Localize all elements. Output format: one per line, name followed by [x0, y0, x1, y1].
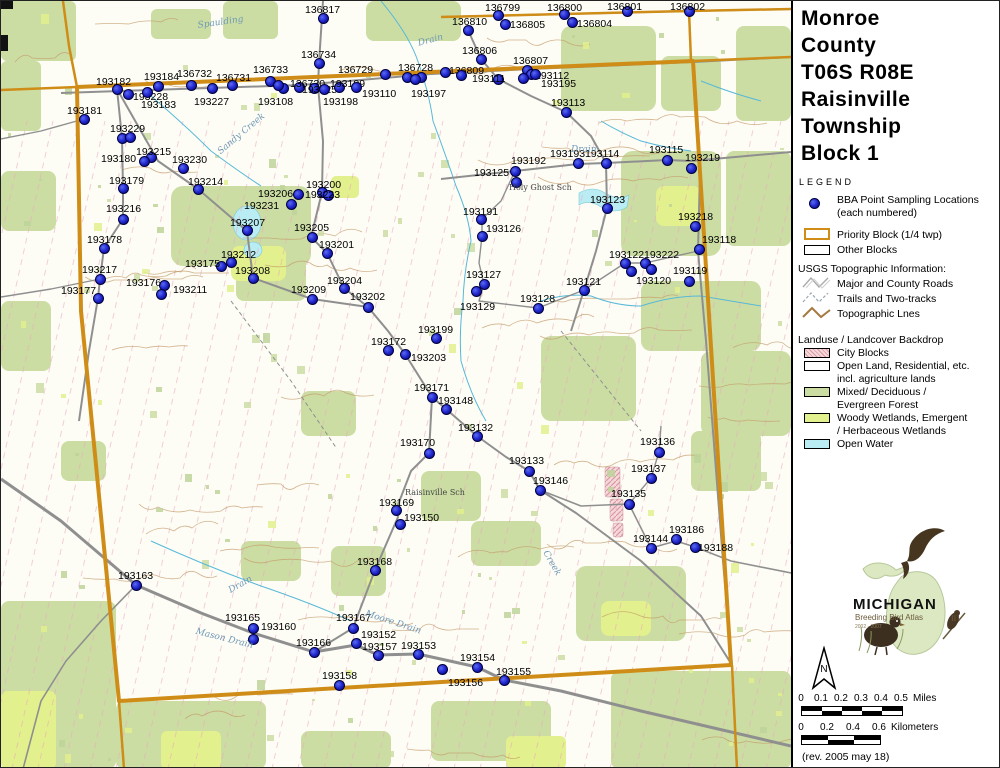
map-place-label: Drain: [417, 32, 444, 48]
bba-point-label: 193216: [106, 203, 141, 215]
scale-tick-label: 0.2: [820, 722, 834, 733]
bba-point-label: 193195: [541, 78, 576, 90]
major-roads-icon: [801, 275, 833, 290]
bba-point-label: 193153: [401, 640, 436, 652]
bba-point-label: 193180: [101, 153, 136, 165]
legend-major-roads-label: Major and County Roads: [837, 278, 953, 290]
map-place-label: Creek: [540, 549, 562, 578]
bba-point-label: 193184: [144, 71, 179, 83]
bba-point-label: 136806: [462, 45, 497, 57]
km-unit-label: Kilometers: [891, 722, 938, 733]
bba-point-label: 193129: [460, 301, 495, 313]
bba-point-label: 193144: [633, 533, 668, 545]
title-line: Monroe: [801, 5, 914, 32]
bba-point-dot: [530, 69, 541, 80]
bba-point-label: 193202: [350, 291, 385, 303]
bba-point-label: 193230: [172, 154, 207, 166]
wetlands-swatch: [804, 413, 830, 423]
bba-point-dot: [662, 155, 673, 166]
legend-bba-points-label: BBA Point Sampling Locations: [837, 194, 979, 206]
bba-point-label: 193128: [520, 293, 555, 305]
bba-point-label: 193119: [673, 265, 707, 277]
map-title: Monroe County T06S R08E Raisinville Town…: [793, 5, 914, 167]
legend-heading: LEGEND: [799, 177, 854, 187]
bba-point-label: 193126: [486, 223, 521, 235]
bba-point-label: 193231: [244, 200, 279, 212]
legend-priority-block-label: Priority Block (1/4 twp): [837, 229, 942, 241]
landuse-section-heading: Landuse / Landcover Backdrop: [798, 334, 943, 346]
bba-point-dot: [348, 623, 359, 634]
bba-point-label: 193214: [188, 176, 223, 188]
legend-forest-label: Mixed/ Deciduous /: [837, 386, 926, 398]
priority-block-swatch: [804, 228, 830, 240]
bba-point-dot: [125, 132, 136, 143]
bba-point-label: 136731: [216, 72, 251, 84]
bba-point-label: 193120: [636, 275, 671, 287]
map-place-label: Drain: [571, 145, 597, 155]
bba-point-label: 193113: [551, 97, 585, 109]
bba-point-label: 193148: [438, 395, 473, 407]
bba-point-label: 193181: [67, 105, 102, 117]
bba-point-label: 193227: [194, 96, 229, 108]
bba-point-label: 193111: [472, 73, 505, 85]
bba-point-label: 193191: [463, 206, 498, 218]
bba-point-dot: [684, 276, 695, 287]
bba-point-dot: [351, 82, 362, 93]
bba-point-label: 193157: [362, 641, 397, 653]
bba-point-label: 193198: [323, 96, 358, 108]
bba-point-label: 136733: [253, 64, 288, 76]
bba-point-label: 193208: [235, 265, 270, 277]
bba-point-dot: [626, 266, 637, 277]
title-line: Township: [801, 113, 914, 140]
bba-point-dot: [500, 19, 511, 30]
logo-subtitle: Breeding Bird Atlas: [855, 613, 923, 622]
bba-point-label: 193125: [474, 167, 509, 179]
bba-point-dot: [123, 89, 134, 100]
bba-point-label: 193150: [404, 512, 439, 524]
bba-point-label: 193178: [87, 234, 122, 246]
bba-point-label: 193122: [609, 249, 644, 261]
bba-point-label: 193217: [82, 264, 117, 276]
open-water-swatch: [804, 439, 830, 449]
north-arrow: N: [807, 646, 841, 692]
bba-point-label: 193197: [411, 88, 446, 100]
city-blocks-swatch: [804, 348, 830, 358]
scale-tick-label: 0: [798, 722, 804, 733]
map-place-label: Drain: [227, 574, 254, 595]
bba-point-dot: [400, 349, 411, 360]
bba-point-dot: [567, 17, 578, 28]
map-place-label: Holy Ghost Sch: [509, 183, 572, 192]
bba-point-label: 193127: [466, 269, 501, 281]
map-place-label: Raisinville Sch: [405, 488, 465, 497]
bba-point-dot: [510, 166, 521, 177]
bba-point-label: 136810: [452, 16, 487, 28]
bba-point-label: 136807: [513, 55, 548, 67]
bba-point-label: 136801: [607, 1, 642, 13]
bba-point-label: 193205: [294, 222, 329, 234]
bba-point-label: 136805: [510, 19, 545, 31]
title-line: Block 1: [801, 140, 914, 167]
bba-point-label: 193137: [631, 463, 666, 475]
legend-forest-label2: Evergreen Forest: [837, 399, 918, 411]
topographic-lines-icon: [801, 305, 833, 320]
bba-point-label: 193146: [533, 475, 568, 487]
scale-tick-label: 0.5: [894, 693, 908, 704]
bba-point-dot: [686, 163, 697, 174]
bba-point-label: 136728: [398, 62, 433, 74]
bba-point-label: 193179: [109, 175, 144, 187]
usgs-section-heading: USGS Topographic Information:: [798, 263, 946, 275]
bba-point-label: 193152: [361, 629, 396, 641]
bba-point-label: 193218: [678, 211, 713, 223]
bba-point-label: 193199: [418, 324, 453, 336]
scale-tick-label: 0.4: [874, 693, 888, 704]
bba-point-dot: [156, 289, 167, 300]
legend-bba-points-label2: (each numbered): [837, 207, 917, 219]
scale-tick-label: 0.6: [872, 722, 886, 733]
bba-point-label: 193154: [460, 652, 495, 664]
bba-point-label: 193132: [458, 422, 493, 434]
bba-point-label: 193183: [141, 99, 176, 111]
logo-title: MICHIGAN: [853, 596, 937, 613]
bba-point-label: 193188: [698, 542, 733, 554]
bba-point-label: 193168: [357, 556, 392, 568]
scale-tick-label: 0.1: [814, 693, 828, 704]
bba-point-label: 136734: [301, 49, 336, 61]
map-place-label: Sandy Creek: [216, 111, 267, 156]
logo-years: 2002 - 2007: [855, 624, 882, 630]
scale-tick-label: 0.2: [834, 693, 848, 704]
scale-tick-label: 0: [798, 693, 804, 704]
bba-point-label: 193212: [221, 249, 256, 261]
bba-point-dot: [471, 286, 482, 297]
bba-point-dot: [518, 73, 529, 84]
bba-point-label: 193133: [509, 455, 544, 467]
bba-point-dot: [624, 499, 635, 510]
scale-tick-label: 0.3: [854, 693, 868, 704]
legend-topo-lines-label: Topographic Lnes: [837, 308, 920, 320]
bba-point-dot: [118, 214, 129, 225]
legend-open-land-label2: incl. agriculture lands: [837, 373, 936, 385]
hawk-icon: [901, 528, 945, 579]
bba-point-label: 193166: [296, 637, 331, 649]
bba-point-dot: [319, 84, 330, 95]
bba-point-label: 193209: [291, 284, 326, 296]
bba-point-label: 193110: [362, 88, 396, 100]
bba-point-label: 193156: [448, 677, 483, 689]
bba-point-label: 193171: [414, 382, 449, 394]
bba-point-label: 193165: [225, 612, 260, 624]
other-blocks-swatch: [804, 245, 830, 255]
bba-point-dot: [646, 264, 657, 275]
bba-point-label: 136732: [177, 68, 212, 80]
north-arrow-label: N: [820, 664, 827, 675]
bba-point-label: 136817: [305, 4, 340, 16]
revision-note: (rev. 2005 may 18): [802, 751, 889, 763]
legend-trails-label: Trails and Two-tracks: [837, 293, 936, 305]
legend-wetlands-label: Woody Wetlands, Emergent: [837, 412, 967, 424]
bba-point-dot: [248, 623, 259, 634]
km-scale-bar: [801, 735, 881, 745]
bba-point-label: 193163: [118, 570, 153, 582]
bba-point-label: 193172: [371, 336, 406, 348]
title-line: T06S R08E: [801, 59, 914, 86]
bba-point-dot: [363, 302, 374, 313]
bba-point-label: 193177: [61, 285, 96, 297]
bba-point-label: 136804: [577, 18, 612, 30]
bba-point-label: 136729: [338, 64, 373, 76]
bba-point-label: 193121: [566, 276, 601, 288]
bba-point-label: 136799: [485, 2, 520, 14]
open-land-swatch: [804, 361, 830, 371]
map-place-label: Mason Drain: [195, 627, 255, 651]
bba-point-dot: [293, 189, 304, 200]
bba-point-label: 193222: [644, 249, 679, 261]
bba-point-legend-icon: [809, 198, 820, 209]
map-panel: 1368171368101367991368051368001368041368…: [1, 1, 791, 768]
scale-tick-label: 0.4: [846, 722, 860, 733]
bba-point-dot: [273, 80, 284, 91]
bba-point-dot: [380, 69, 391, 80]
bba-point-label: 136800: [547, 2, 582, 14]
bba-point-label: 193175: [185, 258, 220, 270]
forest-swatch: [804, 387, 830, 397]
logo-numeral: II: [951, 614, 957, 623]
map-sheet: 1368171368101367991368051368001368041368…: [0, 0, 1000, 768]
bba-point-label: 193115: [649, 144, 683, 156]
bba-point-label: 193211: [173, 284, 207, 296]
legend-wetlands-label2: / Herbaceous Wetlands: [837, 425, 946, 437]
bba-point-label: 193160: [261, 621, 296, 633]
bba-point-label: 193155: [496, 666, 531, 678]
bba-point-label: 136802: [670, 1, 705, 13]
bba-point-dot: [456, 70, 467, 81]
bba-point-dot: [142, 87, 153, 98]
sampling-points-layer: 1368171368101367991368051368001368041368…: [1, 1, 791, 768]
bba-point-label: 193118: [702, 234, 736, 246]
miles-unit-label: Miles: [913, 693, 936, 704]
bba-point-label: 193207: [230, 217, 265, 229]
bba-point-label: 193192: [511, 155, 546, 167]
title-line: County: [801, 32, 914, 59]
bba-point-dot: [654, 447, 665, 458]
bba-point-label: 193219: [685, 152, 720, 164]
bba-point-label: 193135: [611, 488, 646, 500]
bba-point-dot: [437, 664, 448, 675]
trails-icon: [801, 290, 833, 305]
legend-open-water-label: Open Water: [837, 438, 893, 450]
legend-open-land-label: Open Land, Residential, etc.: [837, 360, 970, 372]
bba-point-dot: [351, 638, 362, 649]
bba-point-dot: [186, 80, 197, 91]
map-place-label: Spaulding: [197, 15, 244, 31]
bba-point-label: 193123: [590, 194, 625, 206]
bba-point-label: 193223: [305, 189, 340, 201]
bba-point-label: 193108: [258, 96, 293, 108]
legend-city-blocks-label: City Blocks: [837, 347, 889, 359]
bba-point-label: 193158: [322, 670, 357, 682]
bba-point-label: 193136: [640, 436, 675, 448]
bba-point-dot: [207, 83, 218, 94]
bba-point-label: 193176: [126, 277, 161, 289]
bba-point-dot: [410, 74, 421, 85]
bba-point-label: 193170: [400, 437, 435, 449]
bba-point-label: 193204: [327, 275, 362, 287]
legend-other-blocks-label: Other Blocks: [837, 244, 897, 256]
bba-point-label: 193206: [258, 188, 293, 200]
bba-point-label: 193169: [379, 497, 414, 509]
miles-scale-bar: [801, 706, 903, 716]
bba-point-label: 193182: [96, 76, 131, 88]
legend-sidebar: Monroe County T06S R08E Raisinville Town…: [791, 1, 1000, 768]
michigan-upper-peninsula: [863, 563, 907, 579]
bba-point-label: 193201: [319, 239, 354, 251]
bba-point-dot: [424, 448, 435, 459]
title-line: Raisinville: [801, 86, 914, 113]
bba-point-label: 193203: [411, 352, 446, 364]
bba-point-label: 193186: [669, 524, 704, 536]
bba-point-dot: [286, 199, 297, 210]
bba-point-dot: [139, 156, 150, 167]
